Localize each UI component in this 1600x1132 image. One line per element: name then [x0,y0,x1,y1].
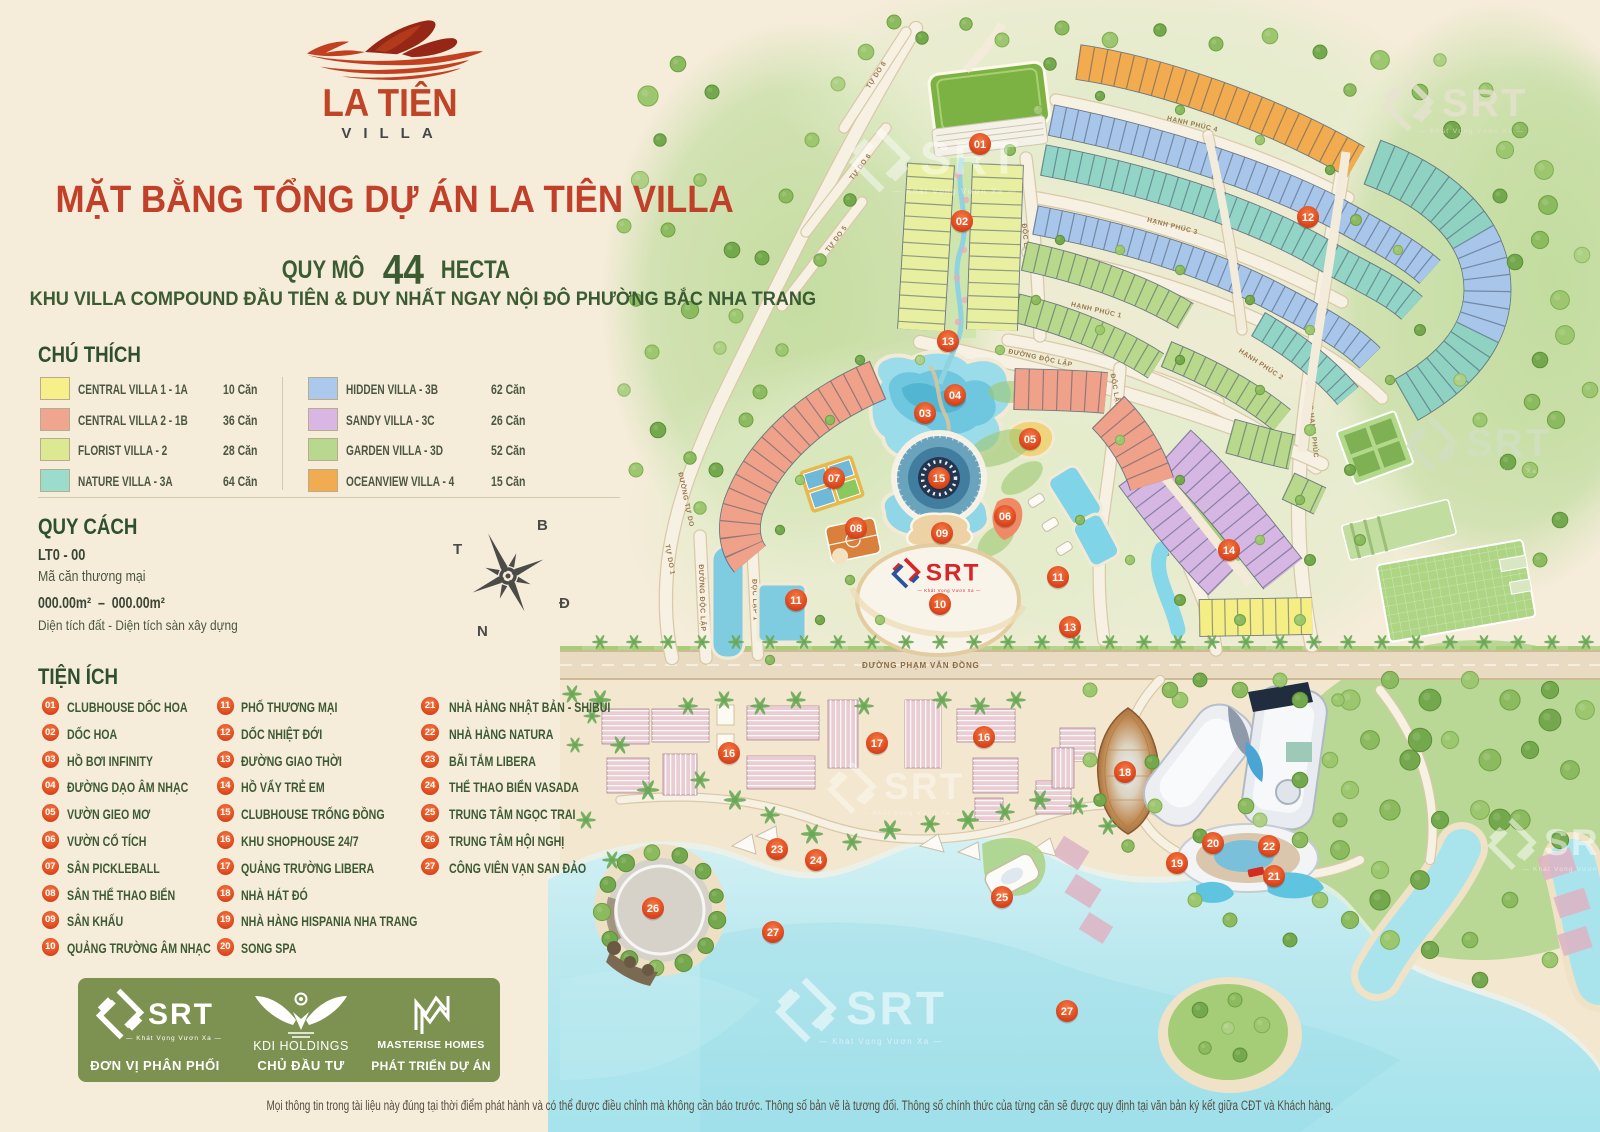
svg-text:— Khát Vọng Vươn Xa —: — Khát Vọng Vươn Xa — [126,1035,222,1042]
svg-text:— Khát Vọng Vươn Xa —: — Khát Vọng Vươn Xa — [893,187,1017,196]
svg-text:VILLA: VILLA [341,125,444,142]
svg-text:SRT: SRT [926,560,981,587]
svg-text:10: 10 [934,599,946,611]
svg-text:20: 20 [1207,838,1219,850]
svg-text:23: 23 [771,844,783,856]
svg-text:22: 22 [1263,841,1275,853]
svg-text:CHỦ ĐẦU TƯ: CHỦ ĐẦU TƯ [257,1058,344,1073]
svg-text:T: T [453,541,462,558]
svg-text:07: 07 [828,473,840,485]
svg-text:— Khát Vọng Vươn Xa —: — Khát Vọng Vươn Xa — [1419,128,1524,135]
svg-text:LA TIÊN: LA TIÊN [322,80,457,124]
svg-text:— Khát Vọng Vươn Xa —: — Khát Vọng Vươn Xa — [862,810,961,817]
svg-text:09: 09 [936,528,948,540]
svg-text:— Khát Vọng Vươn Xa —: — Khát Vọng Vươn Xa — [1522,866,1600,873]
svg-text:15: 15 [933,473,945,485]
svg-text:04: 04 [949,390,962,402]
svg-text:11: 11 [1052,572,1064,584]
svg-text:13: 13 [942,336,954,348]
svg-text:06: 06 [999,511,1011,523]
svg-text:PHÁT TRIỂN DỰ ÁN: PHÁT TRIỂN DỰ ÁN [371,1058,490,1073]
svg-text:— Khát Vọng Vươn Xa —: — Khát Vọng Vươn Xa — [917,588,981,593]
svg-text:03: 03 [919,408,931,420]
svg-text:18: 18 [1119,767,1131,779]
svg-text:SRT: SRT [846,982,947,1034]
svg-text:SRT: SRT [1544,822,1600,863]
svg-text:02: 02 [956,216,968,228]
svg-text:27: 27 [767,927,779,939]
svg-text:21: 21 [1268,871,1280,883]
svg-text:N: N [477,623,488,640]
svg-text:ĐƠN VỊ PHÂN PHỐI: ĐƠN VỊ PHÂN PHỐI [90,1058,220,1073]
svg-text:SRT: SRT [884,766,965,807]
svg-text:11: 11 [790,595,802,607]
svg-text:— Khát Vọng Vươn Xa —: — Khát Vọng Vươn Xa — [819,1037,943,1046]
svg-text:01: 01 [974,139,986,151]
svg-text:16: 16 [723,748,735,760]
svg-text:25: 25 [996,892,1008,904]
svg-text:05: 05 [1024,434,1036,446]
svg-text:17: 17 [871,738,883,750]
svg-text:— Khát Vọng Vươn Xa —: — Khát Vọng Vươn Xa — [1443,468,1548,475]
svg-text:Đ: Đ [559,595,570,612]
svg-text:26: 26 [647,903,659,915]
svg-text:24: 24 [810,855,823,867]
svg-text:SRT: SRT [148,998,214,1031]
svg-text:08: 08 [850,523,862,535]
svg-text:27: 27 [1061,1006,1073,1018]
svg-text:KDI HOLDINGS: KDI HOLDINGS [253,1039,349,1053]
svg-text:B: B [537,517,548,534]
svg-text:ĐƯỜNG PHẠM VĂN ĐỒNG: ĐƯỜNG PHẠM VĂN ĐỒNG [862,660,980,670]
svg-text:14: 14 [1223,545,1236,557]
svg-text:SRT: SRT [1442,82,1528,125]
svg-text:SRT: SRT [1466,422,1552,465]
svg-text:13: 13 [1064,622,1076,634]
svg-text:MASTERISE HOMES: MASTERISE HOMES [377,1039,484,1051]
svg-text:16: 16 [978,732,990,744]
svg-text:19: 19 [1171,858,1183,870]
svg-text:12: 12 [1302,212,1314,224]
